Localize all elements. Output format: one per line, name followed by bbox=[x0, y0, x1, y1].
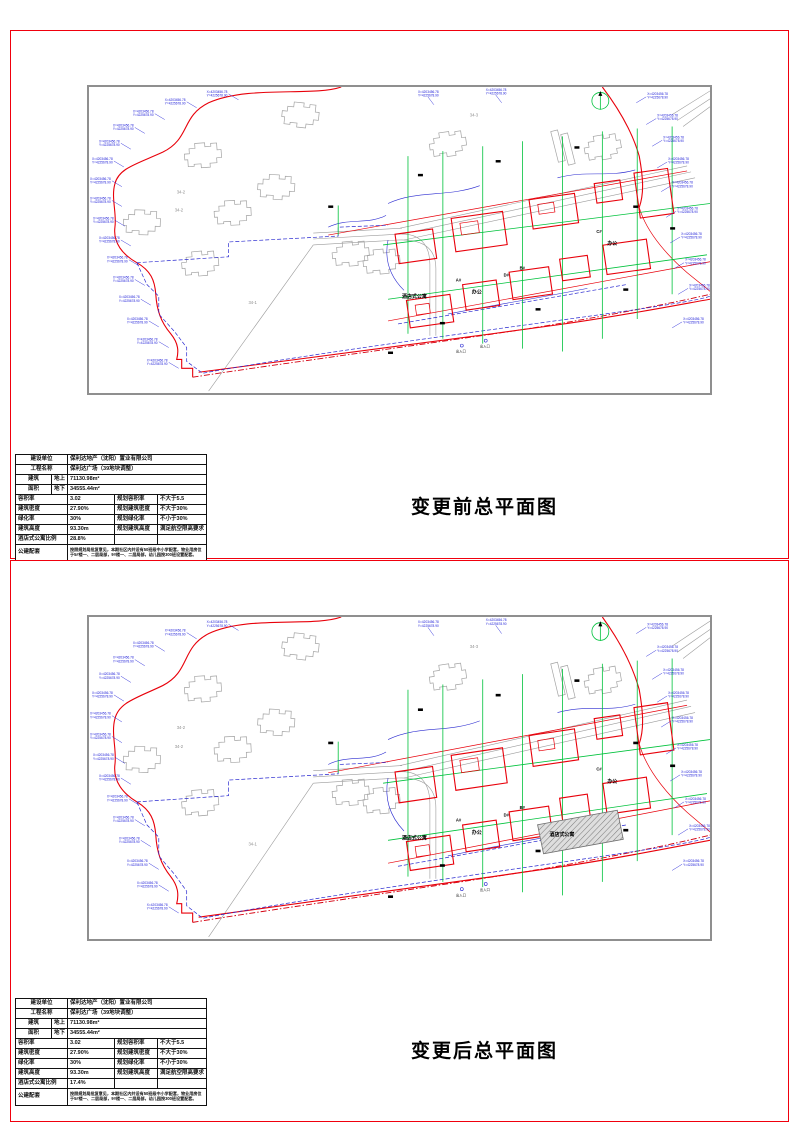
row-label: 规划建筑高度 bbox=[115, 1069, 158, 1079]
svg-text:X=4203456.78Y=4225678.90: X=4203456.78Y=4225678.90 bbox=[90, 177, 111, 185]
row-label: 面积 bbox=[16, 1029, 52, 1039]
svg-text:34-1: 34-1 bbox=[248, 300, 257, 305]
row-label: 建筑高度 bbox=[16, 525, 68, 535]
svg-text:X=4203456.78Y=4225678.90: X=4203456.78Y=4225678.90 bbox=[657, 645, 678, 653]
drawing-frame-after: 酒店式公寓 酒店式公寓 A# B# 办公 D bbox=[87, 615, 712, 941]
svg-text:D#: D# bbox=[504, 812, 510, 817]
row-label: 建筑密度 bbox=[16, 505, 68, 515]
green-value: 30% bbox=[68, 515, 115, 525]
far-limit: 不大于5.5 bbox=[158, 495, 207, 505]
area-below-value: 34555.44m² bbox=[68, 485, 207, 495]
row-label: 规划建筑密度 bbox=[115, 1049, 158, 1059]
row-label: 酒店式公寓比例 bbox=[16, 1079, 68, 1089]
svg-text:X=4203456.78Y=4225678.90: X=4203456.78Y=4225678.90 bbox=[683, 859, 704, 867]
svg-text:办公: 办公 bbox=[472, 829, 483, 836]
svg-text:X=4203456.78Y=4225678.90: X=4203456.78Y=4225678.90 bbox=[99, 236, 120, 244]
row-label: 绿化率 bbox=[16, 1059, 68, 1069]
svg-text:X=4203456.78Y=4225678.90: X=4203456.78Y=4225678.90 bbox=[165, 628, 186, 636]
svg-text:X=4203456.78Y=4225678.90: X=4203456.78Y=4225678.90 bbox=[99, 139, 120, 147]
row-label: 工程名称 bbox=[16, 1009, 68, 1019]
row-label: 绿化率 bbox=[16, 515, 68, 525]
svg-text:X=4203456.78Y=4225678.90: X=4203456.78Y=4225678.90 bbox=[689, 824, 710, 832]
site-plan-before: 酒店式公寓 酒店式公寓 A# B# 办公 D bbox=[89, 87, 710, 393]
svg-text:34-3: 34-3 bbox=[470, 644, 479, 649]
svg-text:X=4203456.78Y=4225678.90: X=4203456.78Y=4225678.90 bbox=[127, 859, 148, 867]
row-label: 规划容积率 bbox=[115, 495, 158, 505]
svg-text:酒店式公寓: 酒店式公寓 bbox=[402, 293, 427, 300]
svg-text:X=4203456.78Y=4225678.90: X=4203456.78Y=4225678.90 bbox=[657, 114, 678, 122]
spec-table-before: 建设单位 保利达地产（沈阳）置业有限公司 工程名称 保利达广场（39地块调整） … bbox=[15, 454, 207, 562]
svg-text:X=4203456.78Y=4225678.90: X=4203456.78Y=4225678.90 bbox=[107, 795, 128, 803]
existing-buildings bbox=[123, 632, 623, 818]
existing-buildings bbox=[123, 101, 623, 278]
row-label: 规划容积率 bbox=[115, 1039, 158, 1049]
new-buildings-red bbox=[391, 703, 685, 871]
svg-text:B#: B# bbox=[520, 266, 526, 271]
area-above-value: 71130.98m² bbox=[68, 475, 207, 485]
svg-text:34-3: 34-3 bbox=[470, 113, 479, 118]
row-label: 规划绿化率 bbox=[115, 515, 158, 525]
svg-text:X=4203456.78Y=4225678.90: X=4203456.78Y=4225678.90 bbox=[681, 232, 702, 240]
svg-text:X=4203456.78Y=4225678.90: X=4203456.78Y=4225678.90 bbox=[133, 110, 154, 118]
apartment-ratio-value: 28.8% bbox=[68, 535, 115, 545]
row-label: 建设单位 bbox=[16, 999, 68, 1009]
svg-text:C#: C# bbox=[596, 229, 602, 234]
svg-text:X=4203456.78Y=4225678.90: X=4203456.78Y=4225678.90 bbox=[418, 90, 439, 98]
row-label: 地下 bbox=[52, 485, 68, 495]
svg-text:X=4203456.78Y=4225678.90: X=4203456.78Y=4225678.90 bbox=[663, 135, 684, 143]
svg-text:出入口: 出入口 bbox=[456, 892, 467, 897]
svg-text:X=4203456.78Y=4225678.90: X=4203456.78Y=4225678.90 bbox=[418, 620, 439, 628]
svg-text:X=4203456.78Y=4225678.90: X=4203456.78Y=4225678.90 bbox=[689, 283, 710, 291]
svg-text:B#: B# bbox=[520, 805, 526, 810]
svg-text:X=4203456.78Y=4225678.90: X=4203456.78Y=4225678.90 bbox=[90, 197, 111, 205]
svg-text:X=4203456.78Y=4225678.90: X=4203456.78Y=4225678.90 bbox=[93, 753, 114, 761]
svg-text:出入口: 出入口 bbox=[456, 349, 466, 354]
dimension-tags bbox=[328, 679, 675, 898]
title-after: 变更后总平面图 bbox=[411, 1036, 558, 1063]
svg-text:X=4203456.78Y=4225678.90: X=4203456.78Y=4225678.90 bbox=[668, 157, 689, 165]
svg-text:X=4203456.78Y=4225678.90: X=4203456.78Y=4225678.90 bbox=[92, 157, 113, 165]
svg-text:出入口: 出入口 bbox=[480, 344, 490, 349]
density-limit: 不大于30% bbox=[158, 505, 207, 515]
svg-text:X=4203456.78Y=4225678.90: X=4203456.78Y=4225678.90 bbox=[647, 92, 668, 100]
row-label: 工程名称 bbox=[16, 465, 68, 475]
amenity-value: 按照规划局批复意见，本期社区内共设有50班级中小学配套，物业用房位于5#楼一、二… bbox=[68, 545, 207, 562]
site-plan-after: 酒店式公寓 酒店式公寓 A# B# 办公 D bbox=[89, 617, 710, 939]
svg-text:X=4203456.78Y=4225678.90: X=4203456.78Y=4225678.90 bbox=[486, 618, 507, 626]
area-below-value: 34555.44m² bbox=[68, 1029, 207, 1039]
row-label: 建筑 bbox=[16, 475, 52, 485]
svg-text:X=4203456.78Y=4225678.90: X=4203456.78Y=4225678.90 bbox=[137, 881, 158, 889]
height-value: 93.30m bbox=[68, 525, 115, 535]
svg-text:出入口: 出入口 bbox=[480, 887, 491, 892]
svg-text:办公: 办公 bbox=[607, 778, 618, 785]
plan-labels: 酒店式公寓 A# B# 办公 D# C# 办公 34-2 34-2 34-1 3… bbox=[175, 644, 618, 897]
sheet-after: 酒店式公寓 酒店式公寓 A# B# 办公 D bbox=[10, 560, 789, 1122]
svg-text:X=4203456.78Y=4225678.90: X=4203456.78Y=4225678.90 bbox=[647, 622, 668, 630]
row-label: 规划绿化率 bbox=[115, 1059, 158, 1069]
height-limit: 满足航空限高要求 bbox=[158, 525, 207, 535]
svg-text:A#: A# bbox=[456, 818, 462, 823]
row-label: 面积 bbox=[16, 485, 52, 495]
svg-text:X=4203456.78Y=4225678.90: X=4203456.78Y=4225678.90 bbox=[113, 276, 134, 284]
svg-text:C#: C# bbox=[596, 767, 602, 772]
svg-text:X=4203456.78Y=4225678.90: X=4203456.78Y=4225678.90 bbox=[486, 88, 507, 96]
svg-text:X=4203456.78Y=4225678.90: X=4203456.78Y=4225678.90 bbox=[165, 98, 186, 106]
plan-labels: 酒店式公寓 A# B# 办公 D# C# 办公 34-2 34-2 34-1 3… bbox=[175, 113, 618, 354]
company-value: 保利达地产（沈阳）置业有限公司 bbox=[68, 999, 207, 1009]
svg-text:X=4203456.78Y=4225678.90: X=4203456.78Y=4225678.90 bbox=[113, 815, 134, 823]
svg-text:X=4203456.78Y=4225678.90: X=4203456.78Y=4225678.90 bbox=[681, 770, 702, 778]
green-limit: 不小于30% bbox=[158, 515, 207, 525]
apartment-ratio-value: 17.4% bbox=[68, 1079, 115, 1089]
row-label: 公建配套 bbox=[16, 545, 68, 562]
title-before: 变更前总平面图 bbox=[411, 492, 558, 519]
sheet-before: 酒店式公寓 酒店式公寓 A# B# 办公 D bbox=[10, 30, 789, 559]
svg-text:X=4203456.78Y=4225678.90: X=4203456.78Y=4225678.90 bbox=[99, 672, 120, 680]
svg-text:X=4203456.78Y=4225678.90: X=4203456.78Y=4225678.90 bbox=[685, 797, 706, 805]
row-label: 规划建筑高度 bbox=[115, 525, 158, 535]
svg-text:X=4203456.78Y=4225678.90: X=4203456.78Y=4225678.90 bbox=[92, 691, 113, 699]
row-label: 酒店式公寓比例 bbox=[16, 535, 68, 545]
far-value: 3.02 bbox=[68, 495, 115, 505]
svg-text:酒店式公寓: 酒店式公寓 bbox=[550, 831, 575, 838]
svg-text:34-2: 34-2 bbox=[175, 744, 184, 749]
svg-text:办公: 办公 bbox=[472, 288, 482, 295]
svg-text:X=4203456.78Y=4225678.90: X=4203456.78Y=4225678.90 bbox=[207, 90, 228, 98]
svg-text:D#: D# bbox=[504, 273, 510, 278]
row-label: 建筑 bbox=[16, 1019, 52, 1029]
svg-text:办公: 办公 bbox=[607, 240, 617, 247]
row-label: 规划建筑密度 bbox=[115, 505, 158, 515]
green-limit: 不小于30% bbox=[158, 1059, 207, 1069]
svg-text:X=4203456.78Y=4225678.90: X=4203456.78Y=4225678.90 bbox=[685, 258, 706, 266]
svg-text:X=4203456.78Y=4225678.90: X=4203456.78Y=4225678.90 bbox=[137, 338, 158, 346]
density-value: 27.90% bbox=[68, 505, 115, 515]
project-value: 保利达广场（39地块调整） bbox=[68, 465, 207, 475]
far-limit: 不大于5.5 bbox=[158, 1039, 207, 1049]
amenity-value: 按照规划局批复意见，本期社区内共设有50班级中小学配套，物业用房位于5#楼一、二… bbox=[68, 1089, 207, 1106]
svg-text:X=4203456.78Y=4225678.90: X=4203456.78Y=4225678.90 bbox=[677, 743, 698, 751]
svg-text:X=4203456.78Y=4225678.90: X=4203456.78Y=4225678.90 bbox=[663, 668, 684, 676]
density-limit: 不大于30% bbox=[158, 1049, 207, 1059]
row-label: 建筑密度 bbox=[16, 1049, 68, 1059]
svg-text:34-1: 34-1 bbox=[248, 841, 257, 846]
svg-text:X=4203456.78Y=4225678.90: X=4203456.78Y=4225678.90 bbox=[147, 903, 168, 911]
svg-text:X=4203456.78Y=4225678.90: X=4203456.78Y=4225678.90 bbox=[107, 256, 128, 264]
row-label: 地上 bbox=[52, 475, 68, 485]
svg-text:X=4203456.78Y=4225678.90: X=4203456.78Y=4225678.90 bbox=[90, 712, 111, 720]
svg-text:X=4203456.78Y=4225678.90: X=4203456.78Y=4225678.90 bbox=[113, 655, 134, 663]
far-value: 3.02 bbox=[68, 1039, 115, 1049]
utility-lines-green bbox=[338, 126, 710, 351]
project-value: 保利达广场（39地块调整） bbox=[68, 1009, 207, 1019]
svg-text:X=4203456.78Y=4225678.90: X=4203456.78Y=4225678.90 bbox=[147, 358, 168, 366]
spec-table-after: 建设单位 保利达地产（沈阳）置业有限公司 工程名称 保利达广场（39地块调整） … bbox=[15, 998, 207, 1106]
drawing-frame-before: 酒店式公寓 酒店式公寓 A# B# 办公 D bbox=[87, 85, 712, 395]
row-label: 容积率 bbox=[16, 1039, 68, 1049]
svg-text:X=4203456.78Y=4225678.90: X=4203456.78Y=4225678.90 bbox=[99, 774, 120, 782]
row-label: 建筑高度 bbox=[16, 1069, 68, 1079]
svg-text:X=4203456.78Y=4225678.90: X=4203456.78Y=4225678.90 bbox=[127, 317, 148, 325]
svg-text:A#: A# bbox=[456, 277, 462, 282]
north-arrow-icon bbox=[592, 621, 609, 641]
svg-text:X=4203456.78Y=4225678.90: X=4203456.78Y=4225678.90 bbox=[119, 836, 140, 844]
company-value: 保利达地产（沈阳）置业有限公司 bbox=[68, 455, 207, 465]
height-value: 93.30m bbox=[68, 1069, 115, 1079]
svg-text:酒店式公寓: 酒店式公寓 bbox=[402, 834, 427, 841]
green-value: 30% bbox=[68, 1059, 115, 1069]
svg-text:34-2: 34-2 bbox=[177, 725, 186, 730]
row-label: 地上 bbox=[52, 1019, 68, 1029]
height-limit: 满足航空限高要求 bbox=[158, 1069, 207, 1079]
svg-text:X=4203456.78Y=4225678.90: X=4203456.78Y=4225678.90 bbox=[668, 691, 689, 699]
svg-text:X=4203456.78Y=4225678.90: X=4203456.78Y=4225678.90 bbox=[677, 206, 698, 214]
row-label: 容积率 bbox=[16, 495, 68, 505]
row-label: 公建配套 bbox=[16, 1089, 68, 1106]
new-buildings-red bbox=[391, 168, 685, 328]
svg-text:X=4203456.78Y=4225678.90: X=4203456.78Y=4225678.90 bbox=[90, 732, 111, 740]
area-above-value: 71130.98m² bbox=[68, 1019, 207, 1029]
row-label: 地下 bbox=[52, 1029, 68, 1039]
svg-text:34-2: 34-2 bbox=[175, 207, 184, 212]
row-label: 建设单位 bbox=[16, 455, 68, 465]
density-value: 27.90% bbox=[68, 1049, 115, 1059]
svg-text:X=4203456.78Y=4225678.90: X=4203456.78Y=4225678.90 bbox=[133, 641, 154, 649]
utility-lines-green bbox=[338, 659, 710, 896]
svg-text:X=4203456.78Y=4225678.90: X=4203456.78Y=4225678.90 bbox=[672, 716, 693, 724]
svg-text:X=4203456.78Y=4225678.90: X=4203456.78Y=4225678.90 bbox=[683, 317, 704, 325]
svg-text:X=4203456.78Y=4225678.90: X=4203456.78Y=4225678.90 bbox=[93, 216, 114, 224]
svg-text:X=4203456.78Y=4225678.90: X=4203456.78Y=4225678.90 bbox=[672, 181, 693, 189]
svg-text:X=4203456.78Y=4225678.90: X=4203456.78Y=4225678.90 bbox=[207, 620, 228, 628]
svg-text:X=4203456.78Y=4225678.90: X=4203456.78Y=4225678.90 bbox=[113, 123, 134, 131]
dimension-tags bbox=[328, 146, 675, 354]
north-arrow-icon bbox=[592, 91, 609, 110]
svg-text:X=4203456.78Y=4225678.90: X=4203456.78Y=4225678.90 bbox=[119, 295, 140, 303]
svg-text:34-2: 34-2 bbox=[177, 190, 186, 195]
